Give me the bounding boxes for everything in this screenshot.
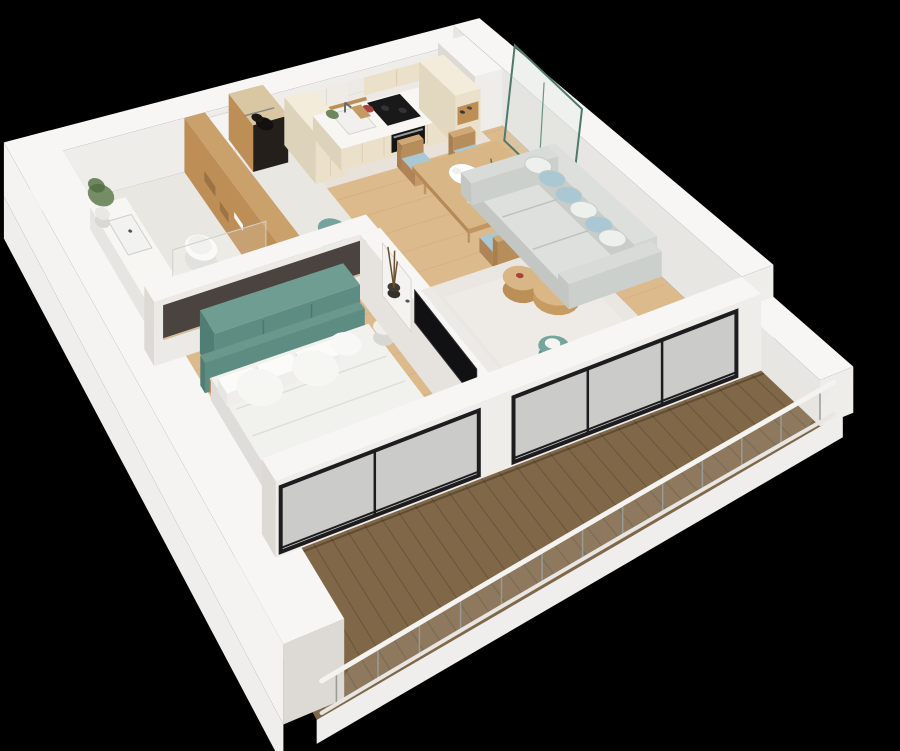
floorplan-render <box>0 0 900 751</box>
chair-back <box>397 141 402 172</box>
render-canvas <box>0 0 900 751</box>
